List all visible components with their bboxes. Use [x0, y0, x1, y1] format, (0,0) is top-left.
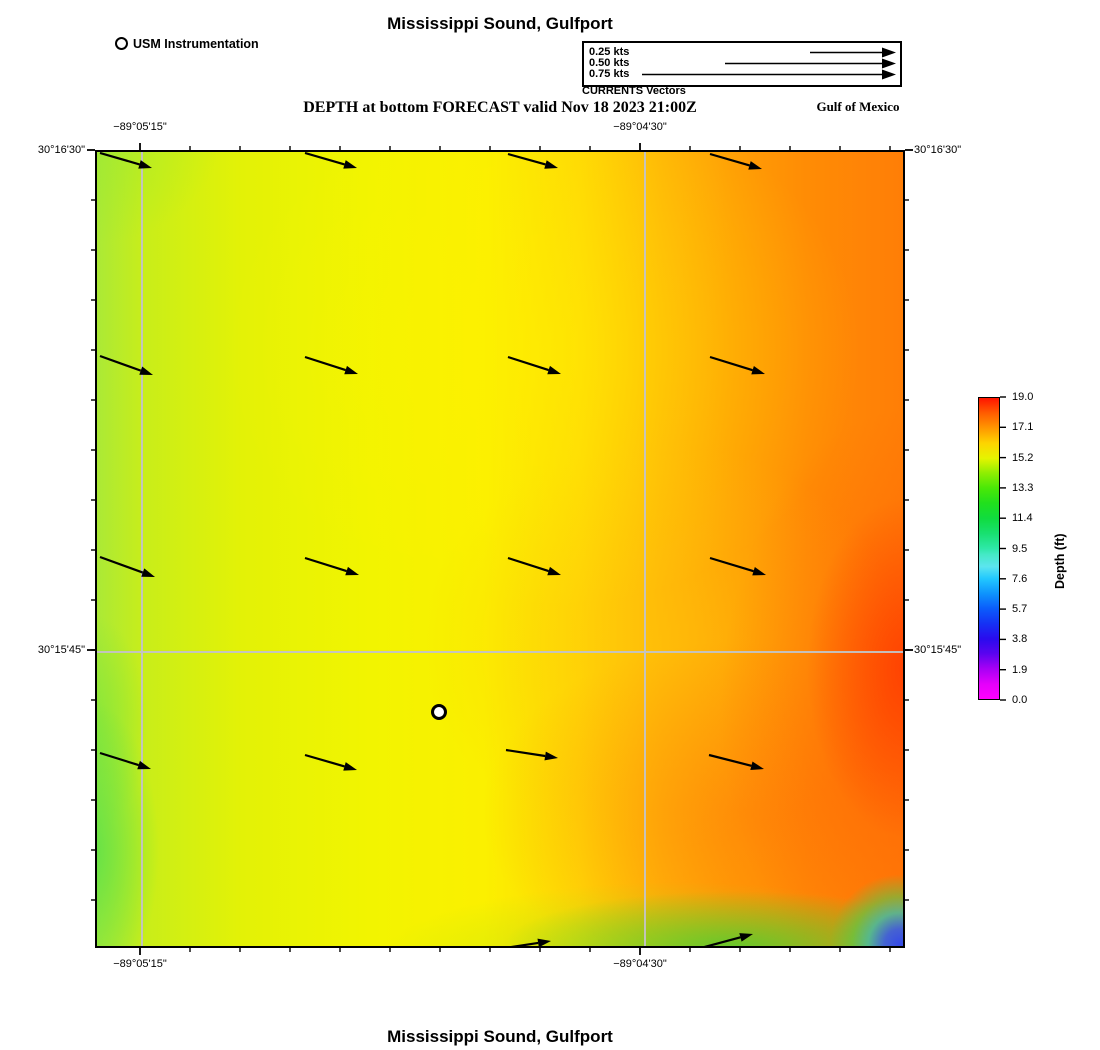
- y-tick-label-right: 30°15'45": [914, 644, 961, 656]
- currents-caption: CURRENTS Vectors: [582, 85, 686, 97]
- current-vector-arrow-head: [547, 366, 561, 374]
- current-vector-arrow: [305, 755, 345, 766]
- colorbar-tick-label: 13.3: [1012, 482, 1033, 494]
- current-vector-arrow-head: [344, 366, 358, 374]
- current-vector-arrow: [100, 356, 141, 371]
- colorbar-tick-label: 5.7: [1012, 603, 1027, 615]
- legend-arrow-head: [882, 59, 896, 69]
- legend-arrow-head: [882, 70, 896, 80]
- current-vector-arrow-head: [141, 568, 155, 577]
- current-vector-arrow-head: [343, 762, 357, 770]
- page-title: Mississippi Sound, Gulfport: [95, 14, 905, 34]
- colorbar-tick-label: 19.0: [1012, 391, 1033, 403]
- current-vector-arrow: [508, 154, 545, 164]
- current-vector-arrow: [709, 755, 751, 766]
- y-tick-label-left: 30°16'30": [7, 144, 85, 156]
- current-vector-arrow: [710, 558, 754, 571]
- colorbar-tick-label: 11.4: [1012, 512, 1033, 524]
- forecast-plot-page: Mississippi Sound, Gulfport USM Instrume…: [0, 0, 1100, 1050]
- current-vector-arrow: [697, 937, 740, 946]
- current-vector-legend: 0.25 kts 0.50 kts 0.75 kts: [582, 41, 902, 87]
- page-title-bottom: Mississippi Sound, Gulfport: [95, 1027, 905, 1047]
- station-legend-label: USM Instrumentation: [133, 37, 259, 51]
- current-vector-arrow-head: [752, 567, 766, 575]
- current-vectors-layer: [97, 152, 903, 946]
- colorbar-title: Depth (ft): [1053, 509, 1067, 589]
- current-vector-arrow-head: [345, 567, 359, 575]
- current-vector-arrow-head: [739, 933, 753, 942]
- current-vector-arrow: [710, 357, 753, 370]
- colorbar-tick-label: 3.8: [1012, 633, 1027, 645]
- current-vector-arrow-head: [343, 160, 357, 168]
- current-vector-arrow: [505, 943, 538, 946]
- colorbar-tick-label: 0.0: [1012, 694, 1027, 706]
- current-vector-arrow-head: [751, 366, 765, 374]
- current-vector-arrow: [100, 557, 143, 573]
- current-vector-arrow: [506, 750, 545, 756]
- colorbar-tick-label: 9.5: [1012, 543, 1027, 555]
- current-vector-arrow-head: [544, 752, 558, 761]
- legend-arrow-icons: [584, 43, 900, 85]
- current-vector-arrow: [305, 153, 345, 164]
- current-vector-arrow-head: [139, 366, 153, 375]
- current-vector-arrow: [305, 558, 347, 571]
- current-vector-arrow: [508, 558, 549, 571]
- x-tick-label-bottom: −89°04'30": [613, 958, 667, 970]
- station-marker-icon: [115, 37, 128, 50]
- current-vector-arrow: [305, 357, 346, 370]
- colorbar: [978, 397, 1000, 700]
- current-vector-arrow: [100, 153, 140, 164]
- current-vector-arrow-head: [544, 160, 558, 168]
- current-vector-arrow-head: [137, 761, 151, 769]
- colorbar-tick-label: 17.1: [1012, 421, 1033, 433]
- current-vector-arrow-head: [547, 567, 561, 575]
- x-tick-label-top: −89°05'15": [113, 121, 167, 133]
- x-tick-label-bottom: −89°05'15": [113, 958, 167, 970]
- station-marker-icon: [431, 704, 447, 720]
- y-tick-label-left: 30°15'45": [7, 644, 85, 656]
- legend-arrow-head: [882, 48, 896, 58]
- current-vector-arrow-head: [138, 160, 152, 168]
- colorbar-tick-label: 1.9: [1012, 664, 1027, 676]
- forecast-heading: DEPTH at bottom FORECAST valid Nov 18 20…: [95, 99, 905, 117]
- region-label: Gulf of Mexico: [808, 99, 908, 115]
- colorbar-tick-label: 7.6: [1012, 573, 1027, 585]
- current-vector-arrow-head: [537, 939, 551, 946]
- current-vector-arrow: [710, 154, 750, 165]
- depth-heatmap: [95, 150, 905, 948]
- current-vector-arrow: [508, 357, 549, 370]
- x-tick-label-top: −89°04'30": [613, 121, 667, 133]
- current-vector-arrow-head: [750, 762, 764, 771]
- current-vector-arrow: [100, 753, 139, 765]
- colorbar-tick-label: 15.2: [1012, 452, 1033, 464]
- current-vector-arrow-head: [748, 161, 762, 169]
- y-tick-label-right: 30°16'30": [914, 144, 961, 156]
